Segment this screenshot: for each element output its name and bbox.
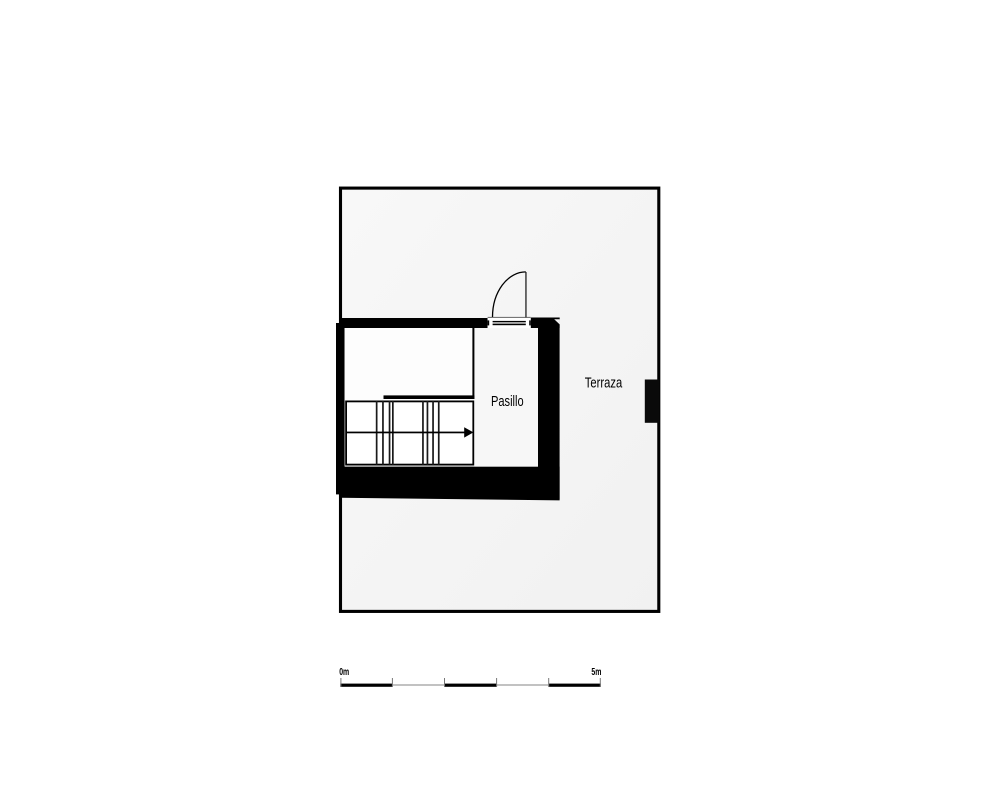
svg-text:Terraza: Terraza (585, 375, 623, 392)
svg-text:Pasillo: Pasillo (491, 393, 524, 410)
svg-text:5m: 5m (591, 667, 601, 678)
svg-text:0m: 0m (339, 667, 349, 678)
